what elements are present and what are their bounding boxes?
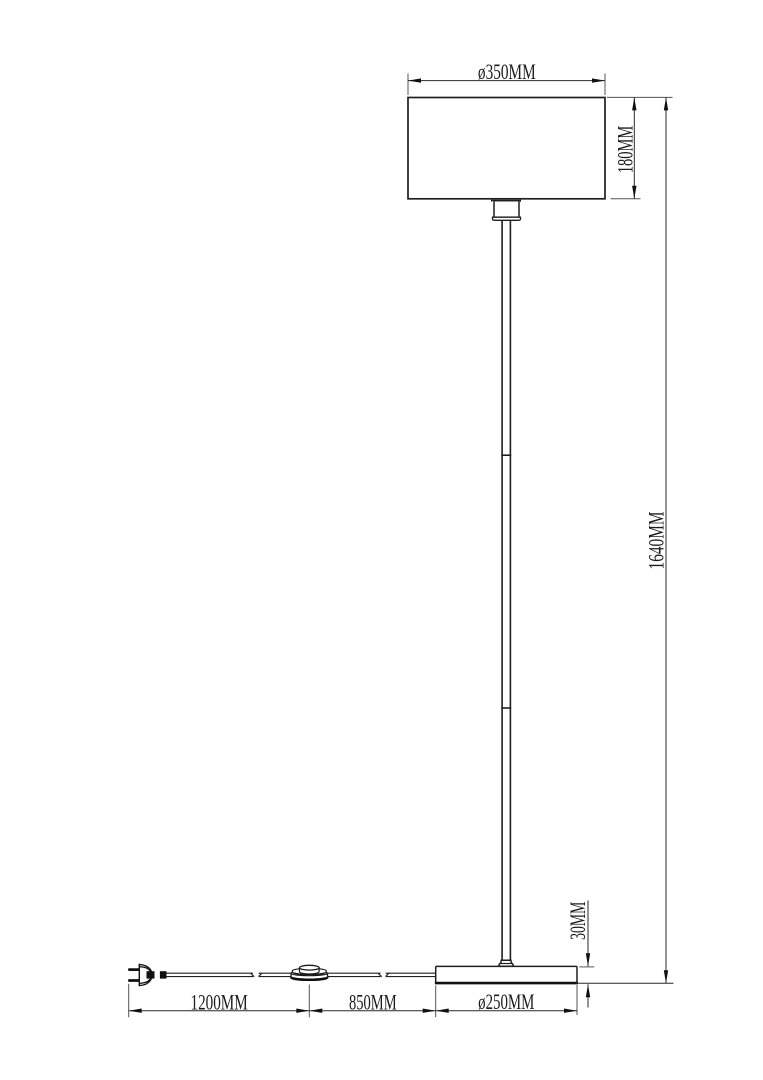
svg-text:1200MM: 1200MM bbox=[190, 991, 247, 1015]
svg-text:1640MM: 1640MM bbox=[645, 511, 669, 569]
svg-text:ø350MM: ø350MM bbox=[478, 60, 536, 84]
svg-text:ø250MM: ø250MM bbox=[478, 990, 534, 1015]
svg-text:30MM: 30MM bbox=[566, 902, 590, 940]
svg-text:850MM: 850MM bbox=[349, 991, 397, 1016]
svg-text:180MM: 180MM bbox=[614, 125, 639, 173]
